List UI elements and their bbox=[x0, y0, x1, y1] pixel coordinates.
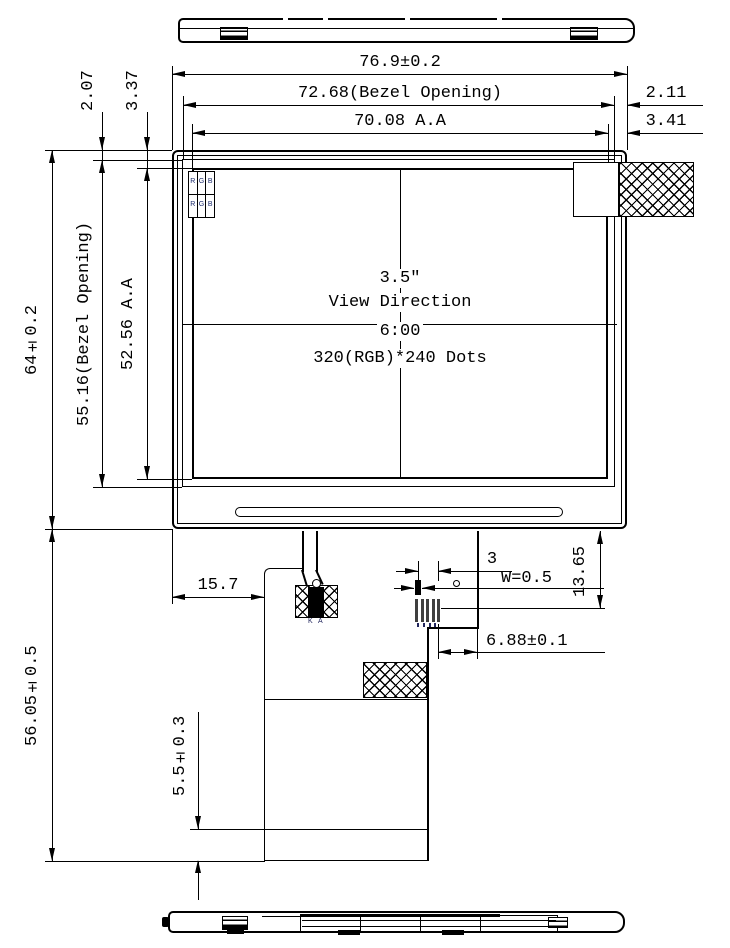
trace-width-mark bbox=[415, 580, 421, 595]
pin-mark bbox=[417, 623, 419, 627]
arrowhead bbox=[49, 848, 55, 861]
led-anode-label: A bbox=[318, 618, 323, 625]
fpc-pin-bar bbox=[432, 599, 435, 622]
dim-height-below-panel: 56.05±0.5 bbox=[24, 644, 44, 748]
arrowhead bbox=[601, 102, 614, 108]
crosshatch-stiffener bbox=[363, 662, 427, 698]
arrowhead bbox=[422, 585, 435, 591]
arrowhead bbox=[438, 649, 451, 655]
alignment-hole bbox=[453, 580, 460, 587]
arrowhead bbox=[172, 71, 185, 77]
top-bar-connector-left bbox=[220, 27, 248, 40]
view-direction-value: 6:00 bbox=[250, 323, 550, 341]
bottom-bar-inner-line bbox=[262, 916, 300, 917]
fpc-pin-bar bbox=[421, 599, 424, 622]
bar-notch bbox=[323, 17, 328, 21]
dim-margin-top-bezel: 2.07 bbox=[80, 67, 100, 114]
arrowhead bbox=[195, 860, 201, 873]
frame-slot bbox=[235, 507, 563, 517]
dim-height-overall: 64±0.2 bbox=[24, 302, 44, 378]
arrowhead bbox=[144, 466, 150, 479]
bottom-bar-connector-left bbox=[222, 916, 248, 930]
extension-line bbox=[93, 487, 182, 488]
arrowhead bbox=[464, 649, 477, 655]
arrowhead bbox=[401, 585, 414, 591]
led-polarity-dot bbox=[312, 579, 321, 588]
dimension-line bbox=[192, 133, 608, 134]
fpc-neck-left-line bbox=[302, 531, 304, 572]
arrowhead bbox=[99, 160, 105, 173]
led-component-body bbox=[308, 587, 324, 617]
pixel-cell-green: G bbox=[198, 172, 207, 194]
arrowhead bbox=[49, 516, 55, 529]
bottom-bar-thick-segment bbox=[300, 914, 500, 917]
dim-margin-right-active-area: 3.41 bbox=[627, 113, 705, 131]
arrowhead bbox=[99, 137, 105, 150]
fpc-stack-tab bbox=[338, 930, 360, 935]
pixel-cell-blue: B bbox=[206, 195, 214, 217]
arrowhead bbox=[183, 102, 196, 108]
pixel-rgb-row: R G B bbox=[188, 171, 215, 195]
dim-margin-top-active-area: 3.37 bbox=[125, 67, 145, 114]
bottom-bar-layer-line bbox=[302, 926, 556, 927]
arrowhead bbox=[597, 531, 603, 544]
lcd-module-dimension-drawing: R G B R G B 3.5″ View Direction 6:00 320… bbox=[0, 0, 730, 948]
extension-line bbox=[477, 628, 478, 659]
dimension-line bbox=[52, 150, 53, 861]
dimension-line bbox=[198, 712, 199, 829]
extension-line bbox=[614, 96, 615, 160]
resolution-label: 320(RGB)*240 Dots bbox=[250, 350, 550, 368]
panel-size-label: 3.5″ bbox=[250, 270, 550, 288]
fpc-pin-bar bbox=[437, 599, 440, 622]
arrowhead bbox=[405, 568, 418, 574]
bar-notch bbox=[405, 17, 410, 21]
extension-line bbox=[93, 160, 183, 161]
bottom-bar-seam bbox=[420, 916, 421, 931]
dim-height-bezel-opening: 55.16(Bezel Opening) bbox=[76, 221, 96, 427]
dimension-line bbox=[183, 105, 614, 106]
fpc-right-edge bbox=[477, 531, 479, 628]
fpc-fold-line bbox=[264, 829, 427, 830]
arrowhead bbox=[614, 71, 627, 77]
fpc-stiffener-line bbox=[264, 699, 427, 700]
arrowhead bbox=[144, 137, 150, 150]
arrowhead bbox=[99, 474, 105, 487]
bar-notch bbox=[497, 17, 502, 21]
fpc-stack-tab bbox=[442, 930, 464, 935]
fpc-pin-bar bbox=[426, 599, 429, 622]
extension-line bbox=[45, 861, 265, 862]
dim-pin-offset: 3 bbox=[478, 551, 506, 569]
arrowhead bbox=[49, 150, 55, 163]
bottom-bar-layer-line bbox=[302, 920, 556, 921]
fpc-neck-right-line bbox=[316, 531, 318, 572]
crosshatch-region-top-right bbox=[619, 162, 694, 217]
dim-fpc-offset-left: 15.7 bbox=[172, 577, 264, 595]
arrowhead bbox=[438, 568, 451, 574]
led-cathode-label: K bbox=[308, 618, 313, 625]
connector-tab bbox=[227, 930, 244, 934]
dimension-line bbox=[172, 74, 627, 75]
dim-fpc-offset-right: 6.88±0.1 bbox=[486, 633, 568, 651]
bottom-bar-seam bbox=[480, 916, 481, 931]
bar-notch bbox=[283, 17, 288, 21]
arrowhead bbox=[195, 816, 201, 829]
dim-height-active-area: 52.56 A.A bbox=[120, 276, 140, 372]
top-bar-connector-right bbox=[570, 27, 598, 40]
extension-line bbox=[627, 66, 628, 150]
dim-width-bezel-opening: 72.68(Bezel Opening) bbox=[270, 85, 530, 103]
extension-line bbox=[190, 829, 265, 830]
extension-line bbox=[418, 561, 419, 581]
dim-fpc-drop-height: 13.65 bbox=[572, 533, 592, 609]
arrowhead bbox=[49, 529, 55, 542]
dim-margin-right-bezel: 2.11 bbox=[627, 85, 705, 103]
corner-notch bbox=[573, 162, 619, 217]
extension-line bbox=[172, 66, 173, 150]
fpc-tail-right-edge bbox=[427, 627, 429, 861]
pin-mark bbox=[423, 623, 425, 627]
extension-line bbox=[137, 479, 192, 480]
arrowhead bbox=[597, 595, 603, 608]
pixel-rgb-row: R G B bbox=[188, 194, 215, 218]
dim-trace-width: W=0.5 bbox=[501, 570, 552, 588]
extension-line bbox=[45, 150, 172, 151]
fpc-step-edge bbox=[427, 627, 479, 629]
fpc-tail-bottom-edge bbox=[264, 860, 429, 862]
arrowhead bbox=[144, 168, 150, 181]
arrowhead bbox=[192, 130, 205, 136]
dim-width-active-area: 70.08 A.A bbox=[300, 113, 500, 131]
top-bar-inner-line bbox=[180, 28, 633, 29]
fpc-pin-bar bbox=[415, 599, 418, 622]
pixel-cell-red: R bbox=[189, 195, 198, 217]
dim-width-overall: 76.9±0.2 bbox=[300, 54, 500, 72]
arrowhead bbox=[595, 130, 608, 136]
pixel-cell-red: R bbox=[189, 172, 198, 194]
bottom-bar-seam bbox=[360, 916, 361, 931]
pixel-cell-green: G bbox=[198, 195, 207, 217]
view-direction-label: View Direction bbox=[250, 294, 550, 312]
dim-tail-fold-length: 5.5±0.3 bbox=[172, 710, 192, 802]
extension-line bbox=[45, 529, 172, 530]
pixel-cell-blue: B bbox=[206, 172, 214, 194]
